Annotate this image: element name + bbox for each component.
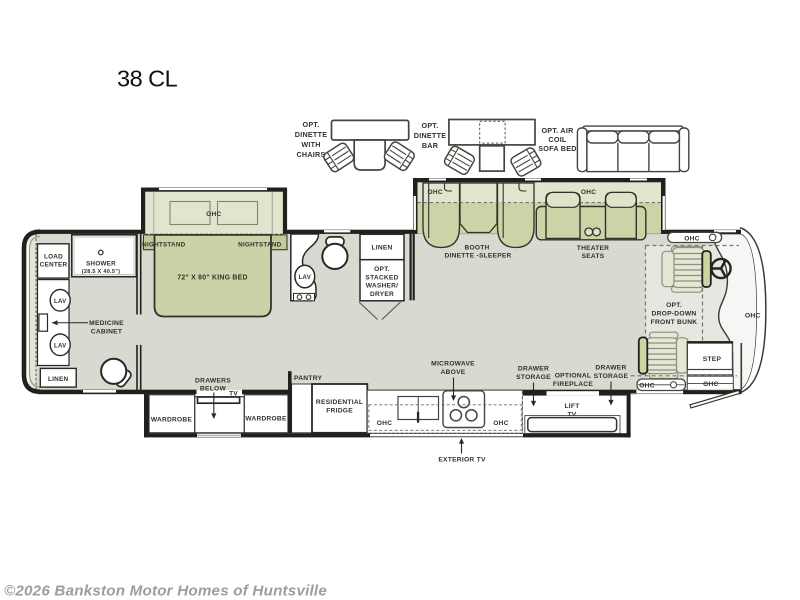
svg-text:LAV: LAV xyxy=(54,299,66,305)
svg-text:DINETTE: DINETTE xyxy=(414,131,447,140)
svg-text:THEATER: THEATER xyxy=(577,245,609,252)
svg-text:WARDROBE: WARDROBE xyxy=(245,416,287,423)
svg-text:OHC: OHC xyxy=(427,189,442,196)
svg-text:OHC: OHC xyxy=(493,420,508,427)
svg-text:LIFT: LIFT xyxy=(564,403,580,410)
svg-text:CHAIRS: CHAIRS xyxy=(296,150,325,159)
svg-text:WITH: WITH xyxy=(301,140,320,149)
svg-text:MEDICINE: MEDICINE xyxy=(89,320,124,327)
svg-text:OPT.: OPT. xyxy=(303,120,320,129)
svg-text:RESIDENTIAL: RESIDENTIAL xyxy=(316,399,363,406)
svg-text:MICROWAVE: MICROWAVE xyxy=(431,361,475,368)
svg-text:FRIDGE: FRIDGE xyxy=(326,407,353,414)
svg-text:STORAGE: STORAGE xyxy=(516,374,551,381)
svg-text:©2026 Bankston Motor Homes of: ©2026 Bankston Motor Homes of Huntsville xyxy=(4,583,327,600)
svg-text:BAR: BAR xyxy=(422,141,439,150)
svg-text:OHC: OHC xyxy=(639,383,654,390)
svg-text:CABINET: CABINET xyxy=(91,328,123,335)
svg-text:OHC: OHC xyxy=(703,381,718,388)
svg-text:STEP: STEP xyxy=(703,356,722,363)
svg-text:DINETTE -SLEEPER: DINETTE -SLEEPER xyxy=(444,253,511,260)
svg-text:OHC: OHC xyxy=(684,235,699,242)
svg-text:PANTRY: PANTRY xyxy=(294,375,323,382)
svg-text:CENTER: CENTER xyxy=(40,262,68,269)
svg-text:OPT.: OPT. xyxy=(422,121,439,130)
svg-text:LINEN: LINEN xyxy=(371,245,392,252)
svg-text:LINEN: LINEN xyxy=(48,376,69,383)
svg-text:FIREPLACE: FIREPLACE xyxy=(553,381,593,388)
svg-text:SHOWER: SHOWER xyxy=(86,260,116,267)
svg-text:EXTERIOR TV: EXTERIOR TV xyxy=(438,457,486,464)
svg-text:DINETTE: DINETTE xyxy=(295,130,328,139)
svg-text:DRYER: DRYER xyxy=(370,291,394,298)
svg-text:OHC: OHC xyxy=(377,420,392,427)
svg-text:WASHER/: WASHER/ xyxy=(366,283,399,290)
svg-text:OHC: OHC xyxy=(745,313,761,320)
svg-text:OPT.: OPT. xyxy=(666,302,682,309)
svg-text:SEATS: SEATS xyxy=(582,253,605,260)
svg-text:38 CL: 38 CL xyxy=(117,66,178,92)
svg-text:LAV: LAV xyxy=(54,343,66,349)
svg-text:(28.5 X 40.5"): (28.5 X 40.5") xyxy=(82,269,121,275)
svg-text:WARDROBE: WARDROBE xyxy=(151,417,193,424)
svg-text:STACKED: STACKED xyxy=(365,274,398,281)
svg-text:DRAWERS: DRAWERS xyxy=(195,377,231,384)
svg-text:FRONT BUNK: FRONT BUNK xyxy=(651,319,698,326)
svg-text:COIL: COIL xyxy=(548,135,567,144)
svg-text:STORAGE: STORAGE xyxy=(594,373,629,380)
svg-text:OHC: OHC xyxy=(206,211,221,218)
svg-text:NIGHTSTAND: NIGHTSTAND xyxy=(142,242,186,249)
svg-text:LOAD: LOAD xyxy=(44,254,63,261)
svg-text:BOOTH: BOOTH xyxy=(464,245,489,252)
svg-text:DRAWER: DRAWER xyxy=(595,365,626,372)
svg-text:OPTIONAL: OPTIONAL xyxy=(555,373,592,380)
svg-text:NIGHTSTAND: NIGHTSTAND xyxy=(238,242,282,249)
svg-text:DRAWER: DRAWER xyxy=(518,366,549,373)
svg-text:OHC: OHC xyxy=(581,189,596,196)
svg-text:DROP-DOWN: DROP-DOWN xyxy=(652,311,697,318)
svg-text:TV: TV xyxy=(229,390,238,397)
svg-text:BELOW: BELOW xyxy=(200,386,227,393)
svg-text:72" X 80" KING BED: 72" X 80" KING BED xyxy=(177,274,247,281)
svg-text:LAV: LAV xyxy=(299,275,311,281)
svg-text:SOFA BED: SOFA BED xyxy=(538,144,576,153)
svg-text:OPT.: OPT. xyxy=(374,266,390,273)
svg-text:ABOVE: ABOVE xyxy=(440,369,465,376)
svg-text:OPT. AIR: OPT. AIR xyxy=(541,126,574,135)
